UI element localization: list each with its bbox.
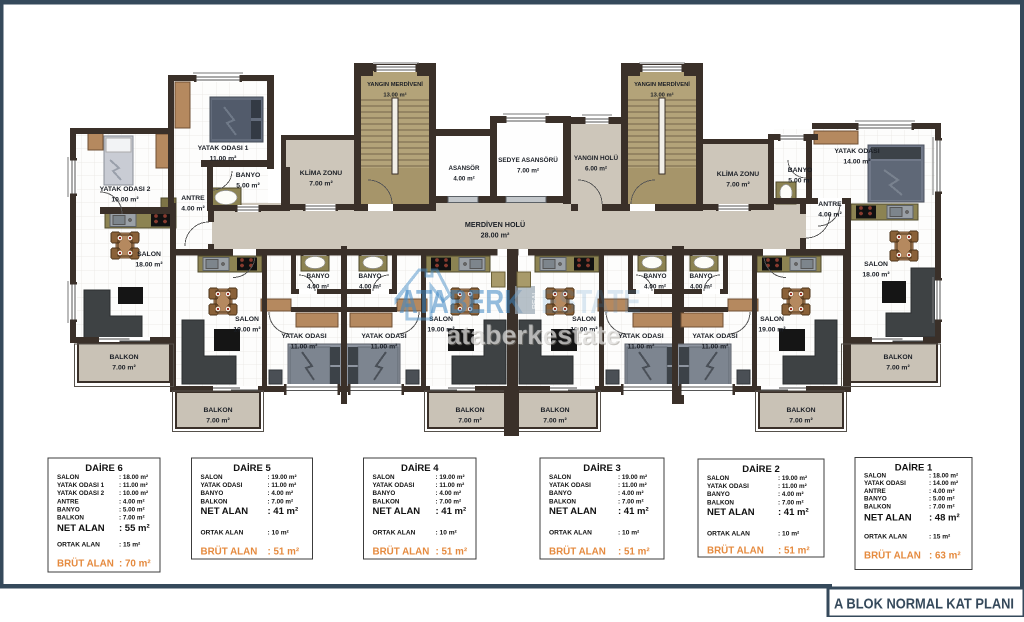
svg-text:YATAK ODASI 2: YATAK ODASI 2 (57, 490, 105, 497)
svg-text:YATAK ODASI: YATAK ODASI (281, 333, 326, 340)
svg-text:: 7.00 m²: : 7.00 m² (929, 503, 955, 510)
svg-text:BANYO: BANYO (707, 491, 730, 498)
svg-text:ORTAK ALAN: ORTAK ALAN (707, 531, 750, 538)
svg-text:ORTAK ALAN: ORTAK ALAN (373, 530, 416, 537)
svg-text:YATAK ODASI 1: YATAK ODASI 1 (57, 482, 105, 489)
svg-text:ataberkestate: ataberkestate (446, 320, 620, 350)
svg-text:: 51 m²: : 51 m² (778, 546, 810, 557)
svg-text:ANTRE: ANTRE (864, 488, 886, 495)
svg-text:: 10 m²: : 10 m² (268, 530, 290, 537)
svg-text:: 10.00 m²: : 10.00 m² (119, 490, 148, 497)
svg-text:BRÜT ALAN: BRÜT ALAN (707, 546, 764, 557)
svg-text:14.00 m²: 14.00 m² (843, 159, 871, 166)
svg-text:YATAK ODASI: YATAK ODASI (707, 483, 749, 490)
svg-text:: 19.00 m²: : 19.00 m² (268, 474, 297, 481)
svg-text:: 7.00 m²: : 7.00 m² (268, 498, 294, 505)
svg-text:BRÜT ALAN: BRÜT ALAN (57, 559, 114, 570)
svg-text:: 15 m²: : 15 m² (119, 542, 141, 549)
svg-text:: 4.00 m²: : 4.00 m² (778, 491, 804, 498)
svg-text:NET ALAN: NET ALAN (201, 506, 249, 517)
svg-text:YATAK ODASI 1: YATAK ODASI 1 (198, 145, 249, 152)
svg-text:YATAK ODASI 2: YATAK ODASI 2 (100, 186, 151, 193)
svg-text:7.00 m²: 7.00 m² (309, 181, 333, 188)
svg-text:BANYO: BANYO (57, 506, 80, 513)
svg-text:4.00 m²: 4.00 m² (359, 284, 381, 291)
svg-text:SALON: SALON (235, 316, 259, 323)
svg-text:18.00 m²: 18.00 m² (135, 262, 163, 269)
svg-text:: 11.00 m²: : 11.00 m² (618, 482, 647, 489)
svg-text:YATAK ODASI: YATAK ODASI (373, 482, 415, 489)
svg-text:YANGIN MERDİVENİ: YANGIN MERDİVENİ (634, 81, 690, 88)
svg-text:: 4.00 m²: : 4.00 m² (436, 490, 462, 497)
svg-text:: 63 m²: : 63 m² (929, 551, 961, 562)
svg-text:BRÜT ALAN: BRÜT ALAN (864, 551, 921, 562)
svg-text:: 18.00 m²: : 18.00 m² (929, 473, 958, 480)
svg-text:SALON: SALON (57, 474, 79, 481)
svg-text:: 41 m²: : 41 m² (778, 507, 809, 518)
svg-text:ANTRE: ANTRE (181, 195, 205, 202)
svg-text:: 41 m²: : 41 m² (436, 506, 467, 517)
svg-text:SALON: SALON (549, 474, 571, 481)
svg-text:: 7.00 m²: : 7.00 m² (436, 498, 462, 505)
svg-text:BALKON: BALKON (540, 407, 569, 414)
svg-text:YATAK ODASI: YATAK ODASI (834, 148, 879, 155)
svg-text:YANGIN HOLÜ: YANGIN HOLÜ (574, 153, 619, 162)
svg-text:ESTATE: ESTATE (541, 283, 641, 320)
svg-text:: 19.00 m²: : 19.00 m² (778, 475, 807, 482)
svg-text:BALKON: BALKON (203, 407, 232, 414)
svg-text:BANYO: BANYO (373, 490, 396, 497)
svg-text:11.00 m²: 11.00 m² (371, 344, 399, 351)
svg-text:11.00 m²: 11.00 m² (702, 344, 730, 351)
svg-text:: 51 m²: : 51 m² (618, 547, 650, 558)
svg-text:BALKON: BALKON (201, 498, 228, 505)
svg-text:: 10 m²: : 10 m² (778, 531, 800, 538)
svg-text:NET ALAN: NET ALAN (549, 506, 597, 517)
svg-text:BRÜT ALAN: BRÜT ALAN (201, 547, 258, 558)
svg-text:YATAK ODASI: YATAK ODASI (864, 480, 906, 487)
svg-text:: 11.00 m²: : 11.00 m² (268, 482, 297, 489)
svg-text:18.00 m²: 18.00 m² (862, 272, 890, 279)
svg-text:7.00 m²: 7.00 m² (206, 418, 230, 425)
svg-text:: 5.00 m²: : 5.00 m² (929, 496, 955, 503)
svg-text:A BLOK NORMAL KAT PLANI: A BLOK NORMAL KAT PLANI (834, 596, 1014, 613)
svg-text:ATABERK: ATABERK (399, 283, 523, 320)
svg-text:BANYO: BANYO (689, 273, 712, 280)
svg-text:KLİMA ZONU: KLİMA ZONU (717, 170, 760, 178)
svg-text:BANYO: BANYO (643, 273, 666, 280)
svg-text:7.00 m²: 7.00 m² (789, 418, 813, 425)
svg-text:BALKON: BALKON (549, 498, 576, 505)
svg-text:SALON: SALON (864, 473, 886, 480)
svg-text:NET ALAN: NET ALAN (707, 507, 755, 518)
svg-text:: 41 m²: : 41 m² (268, 506, 299, 517)
svg-text:: 4.00 m²: : 4.00 m² (268, 490, 294, 497)
svg-text:ORTAK ALAN: ORTAK ALAN (57, 542, 100, 549)
svg-text:: 19.00 m²: : 19.00 m² (618, 474, 647, 481)
svg-text:5.00 m²: 5.00 m² (788, 178, 812, 185)
svg-text:SALON: SALON (201, 474, 223, 481)
svg-text:DAİRE 4: DAİRE 4 (401, 463, 439, 474)
svg-text:: 70 m²: : 70 m² (119, 559, 151, 570)
svg-text:: 48 m²: : 48 m² (929, 513, 960, 524)
svg-text:DAİRE 5: DAİRE 5 (233, 463, 271, 474)
svg-text:7.00 m²: 7.00 m² (517, 168, 539, 175)
svg-text:4.00 m²: 4.00 m² (644, 284, 666, 291)
svg-text:NET ALAN: NET ALAN (864, 513, 912, 524)
svg-text:4.00 m²: 4.00 m² (818, 212, 842, 219)
svg-text:YANGIN MERDİVENİ: YANGIN MERDİVENİ (367, 81, 423, 88)
svg-text:SEDYE ASANSÖRÜ: SEDYE ASANSÖRÜ (498, 155, 558, 164)
svg-text:7.00 m²: 7.00 m² (886, 365, 910, 372)
svg-text:: 51 m²: : 51 m² (436, 547, 468, 558)
svg-text:YATAK ODASI: YATAK ODASI (692, 333, 737, 340)
svg-text:: 5.00 m²: : 5.00 m² (119, 506, 145, 513)
svg-text:10.00 m²: 10.00 m² (111, 197, 139, 204)
svg-text:: 14.00 m²: : 14.00 m² (929, 480, 958, 487)
svg-text:4.00 m²: 4.00 m² (690, 284, 712, 291)
svg-text:11.00 m²: 11.00 m² (210, 156, 238, 163)
svg-text:DAİRE 1: DAİRE 1 (895, 463, 933, 474)
svg-text:7.00 m²: 7.00 m² (112, 365, 136, 372)
svg-text:: 55 m²: : 55 m² (119, 523, 150, 534)
svg-text:: 41 m²: : 41 m² (618, 506, 649, 517)
svg-text:28.00 m²: 28.00 m² (481, 231, 510, 240)
svg-text:ANTRE: ANTRE (57, 498, 79, 505)
svg-text:7.00 m²: 7.00 m² (458, 418, 482, 425)
svg-text:DAİRE 3: DAİRE 3 (583, 463, 620, 474)
svg-text:: 18.00 m²: : 18.00 m² (119, 474, 148, 481)
svg-text:BANYO: BANYO (788, 167, 813, 174)
svg-text:4.00 m²: 4.00 m² (307, 284, 329, 291)
svg-text:11.00 m²: 11.00 m² (628, 344, 656, 351)
svg-text:SALON: SALON (373, 474, 395, 481)
svg-text:SALON: SALON (707, 475, 729, 482)
svg-text:YATAK ODASI: YATAK ODASI (201, 482, 243, 489)
svg-text:KLİMA ZONU: KLİMA ZONU (300, 169, 343, 177)
svg-text:BALKON: BALKON (883, 354, 912, 361)
svg-text:BANYO: BANYO (236, 172, 261, 179)
svg-text:7.00 m²: 7.00 m² (543, 418, 567, 425)
svg-text:ANTRE: ANTRE (818, 201, 842, 208)
svg-text:: 7.00 m²: : 7.00 m² (119, 515, 145, 522)
svg-text:REAL: REAL (532, 291, 539, 309)
svg-text:BALKON: BALKON (864, 503, 891, 510)
svg-text:BALKON: BALKON (786, 407, 815, 414)
svg-text:: 4.00 m²: : 4.00 m² (119, 498, 145, 505)
svg-text:SALON: SALON (137, 251, 161, 258)
svg-text:YATAK ODASI: YATAK ODASI (618, 333, 663, 340)
svg-text:: 51 m²: : 51 m² (268, 547, 300, 558)
svg-text:11.00 m²: 11.00 m² (291, 344, 319, 351)
svg-text:BANYO: BANYO (864, 496, 887, 503)
svg-text:: 19.00 m²: : 19.00 m² (436, 474, 465, 481)
svg-text:: 15 m²: : 15 m² (929, 534, 951, 541)
svg-text:: 7.00 m²: : 7.00 m² (618, 498, 644, 505)
svg-text:: 10 m²: : 10 m² (436, 530, 458, 537)
svg-text:BALKON: BALKON (707, 499, 734, 506)
svg-text:: 4.00 m²: : 4.00 m² (929, 488, 955, 495)
svg-text:ASANSÖR: ASANSÖR (449, 165, 480, 172)
svg-text:BANYO: BANYO (358, 273, 381, 280)
svg-text:BALKON: BALKON (57, 515, 84, 522)
svg-text:YATAK ODASI: YATAK ODASI (549, 482, 591, 489)
svg-text:5.00 m²: 5.00 m² (236, 183, 260, 190)
svg-text:4.00 m²: 4.00 m² (181, 206, 205, 213)
svg-text:: 11.00 m²: : 11.00 m² (778, 483, 807, 490)
svg-text:: 11.00 m²: : 11.00 m² (436, 482, 465, 489)
svg-text:BRÜT ALAN: BRÜT ALAN (549, 547, 606, 558)
svg-text:NET ALAN: NET ALAN (57, 523, 105, 534)
svg-text:BALKON: BALKON (455, 407, 484, 414)
svg-text:BALKON: BALKON (109, 354, 138, 361)
svg-text:: 7.00 m²: : 7.00 m² (778, 499, 804, 506)
svg-text:SALON: SALON (864, 261, 888, 268)
svg-text:ORTAK ALAN: ORTAK ALAN (549, 530, 592, 537)
svg-text:BANYO: BANYO (549, 490, 572, 497)
svg-text:ORTAK ALAN: ORTAK ALAN (201, 530, 244, 537)
svg-text:6.00 m²: 6.00 m² (585, 166, 607, 173)
svg-text:MERDİVEN HOLÜ: MERDİVEN HOLÜ (465, 220, 525, 229)
svg-text:: 11.00 m²: : 11.00 m² (119, 482, 148, 489)
svg-text:4.00 m²: 4.00 m² (453, 176, 474, 183)
svg-text:BALKON: BALKON (373, 498, 400, 505)
svg-text:19.00 m²: 19.00 m² (233, 327, 261, 334)
svg-text:DAİRE 2: DAİRE 2 (742, 464, 779, 475)
svg-text:BANYO: BANYO (201, 490, 224, 497)
svg-text:BANYO: BANYO (306, 273, 329, 280)
svg-text:13.00 m²: 13.00 m² (383, 92, 406, 99)
svg-text:ORTAK ALAN: ORTAK ALAN (864, 534, 907, 541)
svg-text:19.00 m²: 19.00 m² (758, 327, 786, 334)
svg-text:7.00 m²: 7.00 m² (726, 182, 750, 189)
svg-text:: 10 m²: : 10 m² (618, 530, 640, 537)
svg-text:SALON: SALON (760, 316, 784, 323)
svg-text:13.00 m²: 13.00 m² (650, 92, 673, 99)
svg-text:NET ALAN: NET ALAN (373, 506, 421, 517)
svg-text:BRÜT ALAN: BRÜT ALAN (373, 547, 430, 558)
svg-text:DAİRE 6: DAİRE 6 (85, 463, 122, 474)
svg-text:YATAK ODASI: YATAK ODASI (361, 333, 406, 340)
svg-text:: 4.00 m²: : 4.00 m² (618, 490, 644, 497)
